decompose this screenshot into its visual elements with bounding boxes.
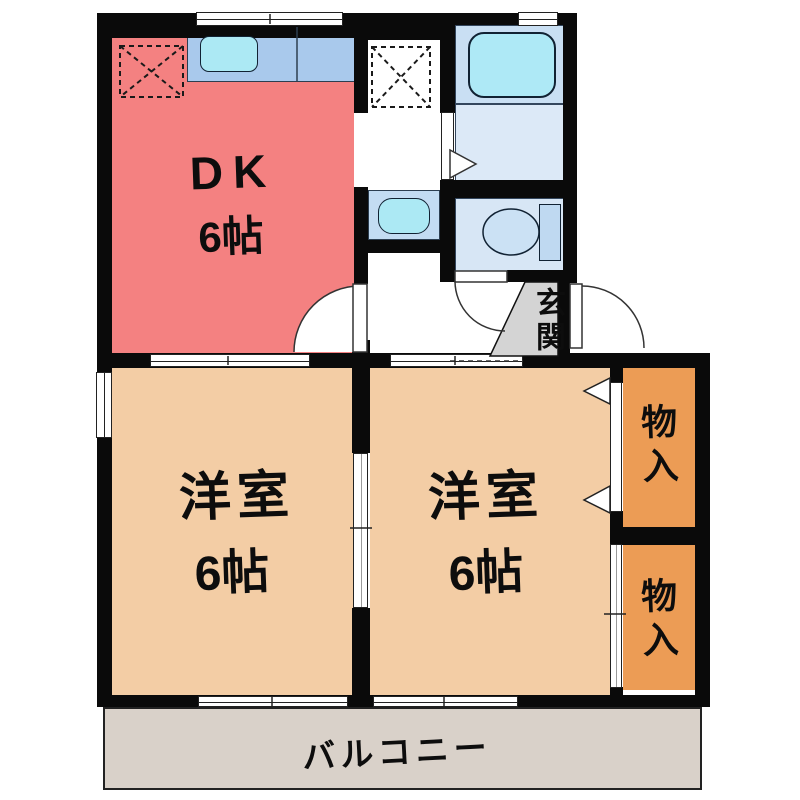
dk-size: 6帖 (198, 215, 265, 259)
closet-sliding-door (610, 544, 622, 688)
west-right-size: 6帖 (448, 549, 524, 600)
room-west-right (370, 368, 610, 695)
kitchen-sink (200, 36, 258, 72)
toilet-door-arc (455, 281, 505, 331)
wall-bath-left-upper (440, 25, 455, 113)
wall-right-outer-lower (695, 353, 710, 707)
closet-bifold-door (610, 382, 622, 512)
wall-hall-dk (354, 187, 368, 284)
wall-closet-left-c (610, 687, 623, 696)
entrance-door-arc (582, 286, 644, 348)
entrance-door-leaf (570, 284, 582, 348)
washing-machine-niche (0, 0, 70, 73)
wall-divider-bottom (352, 608, 370, 698)
washing-machine-space (372, 47, 430, 107)
sliding-partition (353, 453, 368, 608)
washbasin-sink (378, 198, 430, 234)
genkan-label: 玄関 (532, 287, 562, 355)
toilet-tank (539, 204, 561, 261)
dk-label: DK (189, 148, 277, 197)
window-dk-room (150, 354, 310, 367)
wall-left-outer (97, 13, 112, 707)
bathtub (468, 32, 556, 98)
window-genkan-room (390, 354, 523, 367)
closet-lower-label: 物入 (637, 576, 676, 665)
window-bath (518, 12, 558, 26)
washroom-door (441, 112, 454, 180)
window-balcony-left (198, 696, 348, 707)
wall-closet-left-b (610, 511, 623, 528)
closet-upper-label: 物入 (637, 402, 676, 491)
floorplan: DK 6帖 洋室 6帖 洋室 6帖 物入 物入 玄関 バルコニー (0, 0, 800, 800)
washroom (455, 104, 565, 192)
wall-niche-left (354, 38, 368, 113)
room-west-left (112, 368, 353, 695)
west-left-label: 洋室 (178, 469, 296, 525)
window-left-wall (96, 372, 112, 438)
window-balcony-right (373, 696, 518, 707)
wall-closet-mid (610, 527, 695, 545)
wall-right-upper (563, 13, 577, 283)
toilet-door-leaf (455, 271, 507, 282)
balcony-label: バルコニー (302, 731, 493, 774)
wall-washroom-toilet (440, 180, 567, 198)
wall-closet-left-a (610, 367, 623, 383)
wall-basin-bottom (357, 240, 440, 253)
west-left-size: 6帖 (194, 549, 270, 600)
west-right-label: 洋室 (427, 469, 545, 525)
window-kitchen (196, 12, 343, 26)
